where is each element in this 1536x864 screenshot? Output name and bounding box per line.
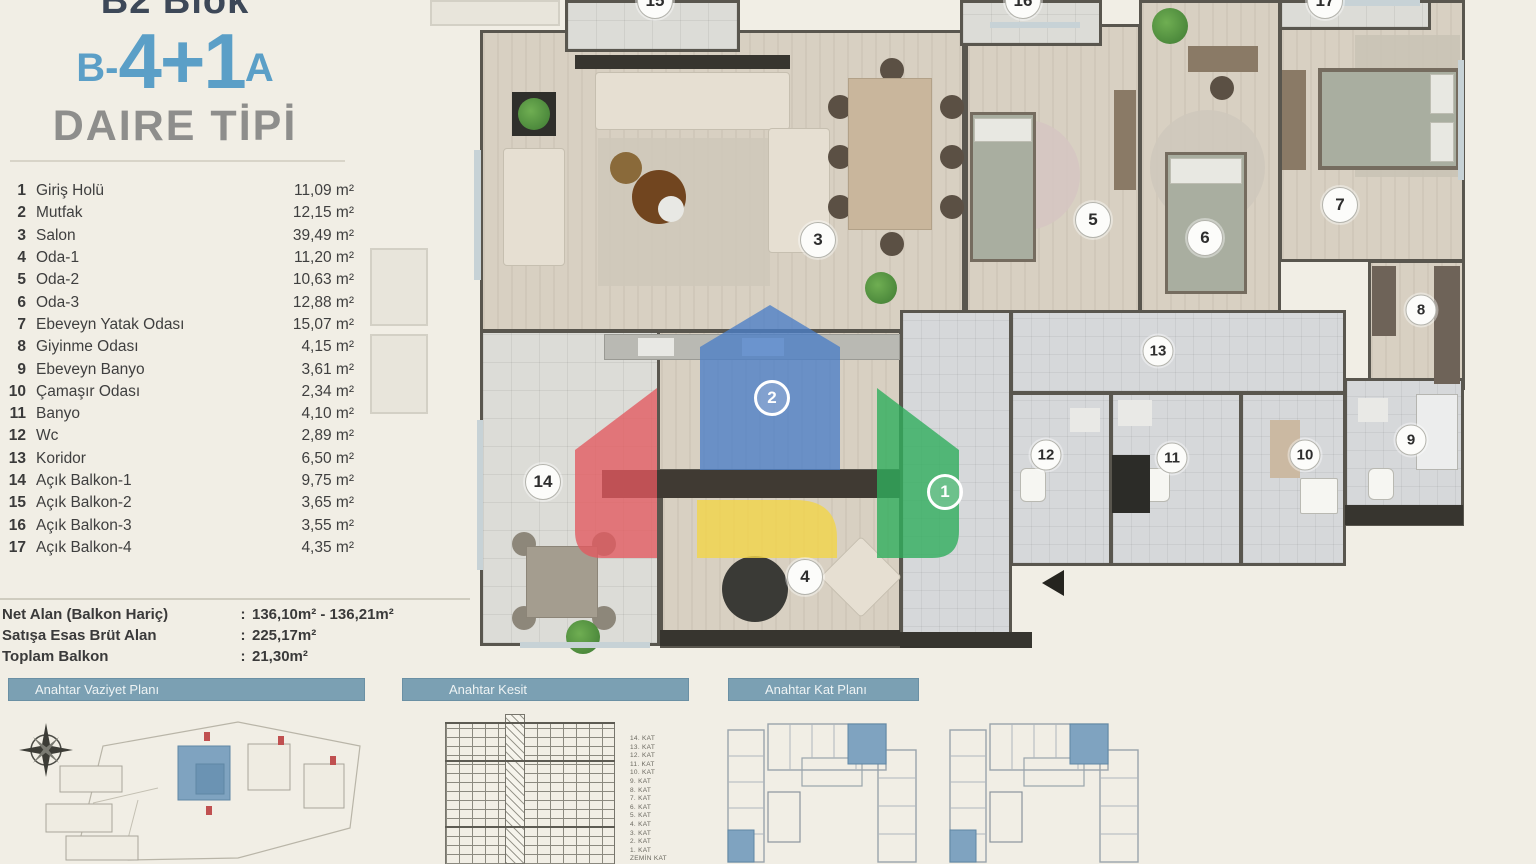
room-number: 4 [800, 567, 809, 587]
building-highlighted-core [196, 764, 224, 794]
room-number-marker: 12 [1031, 440, 1062, 471]
highlighted-unit [848, 724, 886, 764]
room-list-row: 3 Salon 39,49 m² [6, 225, 354, 247]
room-list-row: 16 Açık Balkon-3 3,55 m² [6, 514, 354, 536]
room-number-marker: 16 [1005, 0, 1041, 19]
room-number: 16 [1014, 0, 1033, 11]
room-list-number: 6 [6, 294, 36, 312]
room-list-name: Açık Balkon-4 [36, 539, 268, 557]
room-list-name: Oda-1 [36, 249, 268, 267]
room-list-number: 1 [6, 182, 36, 200]
room-list-row: 8 Giyinme Odası 4,15 m² [6, 336, 354, 358]
room-list-area: 15,07 m² [268, 316, 354, 334]
room-list-number: 10 [6, 383, 36, 401]
kesit-floor-label: 2. KAT [630, 838, 700, 847]
room-list-row: 9 Ebeveyn Banyo 3,61 m² [6, 358, 354, 380]
kesit-floor-label: 3. KAT [630, 830, 700, 839]
key-plan-2 [950, 724, 1138, 862]
room-number-marker: 5 [1075, 202, 1111, 238]
kesit-floor-label: 9. KAT [630, 778, 700, 787]
highlighted-unit [950, 830, 976, 862]
room-number-marker: 1 [927, 474, 963, 510]
room-list-row: 10 Çamaşır Odası 2,34 m² [6, 381, 354, 403]
kesit-floor-line [445, 826, 615, 828]
summary-colon: : [234, 627, 252, 644]
room-list-row: 6 Oda-3 12,88 m² [6, 291, 354, 313]
room-list-name: Çamaşır Odası [36, 383, 268, 401]
room-number: 10 [1297, 447, 1314, 464]
building-outline [304, 764, 344, 808]
type-code-main: 4+1 [119, 28, 245, 94]
room-number: 15 [646, 0, 665, 11]
room-number-marker: 9 [1396, 425, 1427, 456]
room-list-name: Giriş Holü [36, 182, 268, 200]
room-list-number: 16 [6, 517, 36, 535]
building-outline [66, 836, 138, 860]
room-list-row: 17 Açık Balkon-4 4,35 m² [6, 537, 354, 559]
room-number-marker: 8 [1406, 295, 1437, 326]
room-list-name: Wc [36, 427, 268, 445]
room-number: 14 [534, 472, 553, 492]
room-list-name: Oda-3 [36, 294, 268, 312]
room-list-name: Ebeveyn Banyo [36, 361, 268, 379]
room-number: 2 [767, 388, 776, 408]
room-list-name: Koridor [36, 450, 268, 468]
room-list-area: 4,35 m² [268, 539, 354, 557]
room-list-number: 11 [6, 405, 36, 423]
room-number-marker: 11 [1157, 443, 1188, 474]
room-list-row: 2 Mutfak 12,15 m² [6, 202, 354, 224]
room-list-name: Açık Balkon-2 [36, 494, 268, 512]
section-title: Anahtar Kesit [449, 682, 527, 697]
room-list-name: Salon [36, 227, 268, 245]
room-number: 11 [1164, 450, 1180, 467]
site-marker [206, 806, 212, 815]
kesit-floor-label: 8. KAT [630, 787, 700, 796]
room-list-row: 1 Giriş Holü 11,09 m² [6, 180, 354, 202]
kesit-floor-label: 7. KAT [630, 795, 700, 804]
room-list-area: 3,55 m² [268, 517, 354, 535]
section-bar-kesit: Anahtar Kesit [402, 678, 689, 701]
section-title: Anahtar Kat Planı [765, 682, 867, 697]
room-number-marker: 3 [800, 222, 836, 258]
room-list-number: 8 [6, 338, 36, 356]
section-title: Anahtar Vaziyet Planı [35, 682, 159, 697]
room-list-area: 11,09 m² [268, 182, 354, 200]
room-list-name: Açık Balkon-1 [36, 472, 268, 490]
room-list-area: 3,61 m² [268, 361, 354, 379]
room-list-area: 6,50 m² [268, 450, 354, 468]
room-number-marker: 15 [637, 0, 673, 19]
room-number-marker: 2 [754, 380, 790, 416]
kesit-floor-label: 10. KAT [630, 769, 700, 778]
room-list-area: 11,20 m² [268, 249, 354, 267]
room-list-number: 12 [6, 427, 36, 445]
highlighted-unit [728, 830, 754, 862]
room-number-marker: 4 [787, 559, 823, 595]
room-number-marker: 14 [525, 464, 561, 500]
kesit-floor-label: 14. KAT [630, 735, 700, 744]
room-number: 9 [1407, 432, 1415, 449]
room-list-name: Giyinme Odası [36, 338, 268, 356]
room-list-number: 2 [6, 204, 36, 222]
section-bar-kat: Anahtar Kat Planı [728, 678, 919, 701]
room-number: 12 [1038, 447, 1055, 464]
summary-label: Net Alan (Balkon Hariç) [2, 606, 234, 623]
kesit-floor-labels: 14. KAT 13. KAT 12. KAT 11. KAT 10. KAT … [630, 735, 700, 864]
room-number-marker: 17 [1307, 0, 1343, 19]
summary-colon: : [234, 606, 252, 623]
room-list-row: 4 Oda-1 11,20 m² [6, 247, 354, 269]
room-number: 6 [1200, 228, 1209, 248]
kesit-floor-label: 13. KAT [630, 744, 700, 753]
room-number: 7 [1335, 195, 1344, 215]
room-number: 8 [1417, 302, 1425, 319]
site-plan-drawing [8, 708, 368, 864]
building-outline [46, 804, 112, 832]
room-list-area: 39,49 m² [268, 227, 354, 245]
room-list-row: 5 Oda-2 10,63 m² [6, 269, 354, 291]
room-number: 1 [940, 482, 949, 502]
type-code-prefix: B- [76, 48, 118, 94]
summary-label: Satışa Esas Brüt Alan [2, 627, 234, 644]
room-list-name: Ebeveyn Yatak Odası [36, 316, 268, 334]
unit-type-code: B-4+1A [0, 28, 350, 94]
room-list-row: 13 Koridor 6,50 m² [6, 448, 354, 470]
site-marker [204, 732, 210, 741]
room-list-number: 9 [6, 361, 36, 379]
site-marker [278, 736, 284, 745]
room-list-number: 3 [6, 227, 36, 245]
building-outline [248, 744, 290, 790]
room-number: 3 [813, 230, 822, 250]
kesit-floor-label: 5. KAT [630, 812, 700, 821]
room-list-name: Mutfak [36, 204, 268, 222]
summary-colon: : [234, 648, 252, 665]
kesit-floor-label: ZEMİN KAT [630, 855, 700, 864]
room-number-marker: 10 [1290, 440, 1321, 471]
room-number-marker: 6 [1187, 220, 1223, 256]
room-list-area: 4,15 m² [268, 338, 354, 356]
room-list-row: 7 Ebeveyn Yatak Odası 15,07 m² [6, 314, 354, 336]
room-list-row: 12 Wc 2,89 m² [6, 425, 354, 447]
room-number-marker: 7 [1322, 187, 1358, 223]
room-list: 1 Giriş Holü 11,09 m² 2 Mutfak 12,15 m² … [6, 180, 354, 559]
room-number: 13 [1150, 343, 1167, 360]
section-bar-vaziyet: Anahtar Vaziyet Planı [8, 678, 365, 701]
floor-plan: 1 2 3 4 5 6 7 [370, 0, 1536, 668]
room-markers: 1 2 3 4 5 6 7 [370, 0, 1536, 668]
kesit-tower-drawing [445, 722, 615, 864]
kesit-roof-line [445, 722, 615, 724]
room-list-row: 14 Açık Balkon-1 9,75 m² [6, 470, 354, 492]
kesit-core-drawing [505, 714, 525, 864]
room-list-area: 2,89 m² [268, 427, 354, 445]
type-code-suffix: A [245, 48, 274, 94]
key-floor-plans [720, 710, 1170, 864]
room-list-number: 14 [6, 472, 36, 490]
site-marker [330, 756, 336, 765]
room-number: 5 [1088, 210, 1097, 230]
room-list-area: 12,88 m² [268, 294, 354, 312]
room-list-number: 7 [6, 316, 36, 334]
room-list-name: Açık Balkon-3 [36, 517, 268, 535]
summary-label: Toplam Balkon [2, 648, 234, 665]
room-list-area: 10,63 m² [268, 271, 354, 289]
room-number-marker: 13 [1143, 336, 1174, 367]
room-list-row: 15 Açık Balkon-2 3,65 m² [6, 492, 354, 514]
room-list-area: 4,10 m² [268, 405, 354, 423]
room-list-name: Oda-2 [36, 271, 268, 289]
room-list-area: 9,75 m² [268, 472, 354, 490]
building-outline [60, 766, 122, 792]
room-number: 17 [1316, 0, 1335, 11]
room-list-number: 5 [6, 271, 36, 289]
kesit-floor-line [445, 760, 615, 762]
kesit-floor-label: 6. KAT [630, 804, 700, 813]
room-list-number: 15 [6, 494, 36, 512]
floor-plan-brochure: { "title": { "block": "B2 Blok", "code_p… [0, 0, 1536, 864]
page-subtitle: DAIRE TİPİ [0, 102, 350, 151]
kesit-floor-label: 12. KAT [630, 752, 700, 761]
highlighted-unit [1070, 724, 1108, 764]
key-plan-1 [728, 724, 916, 862]
room-list-area: 12,15 m² [268, 204, 354, 222]
room-list-row: 11 Banyo 4,10 m² [6, 403, 354, 425]
divider [10, 160, 345, 162]
room-list-name: Banyo [36, 405, 268, 423]
room-list-number: 17 [6, 539, 36, 557]
kesit-floor-label: 4. KAT [630, 821, 700, 830]
room-list-area: 3,65 m² [268, 494, 354, 512]
kesit-floor-label: 11. KAT [630, 761, 700, 770]
room-list-number: 4 [6, 249, 36, 267]
room-list-number: 13 [6, 450, 36, 468]
info-panel: B2 Blok B-4+1A DAIRE TİPİ 1 Giriş Holü 1… [0, 0, 370, 672]
room-list-area: 2,34 m² [268, 383, 354, 401]
